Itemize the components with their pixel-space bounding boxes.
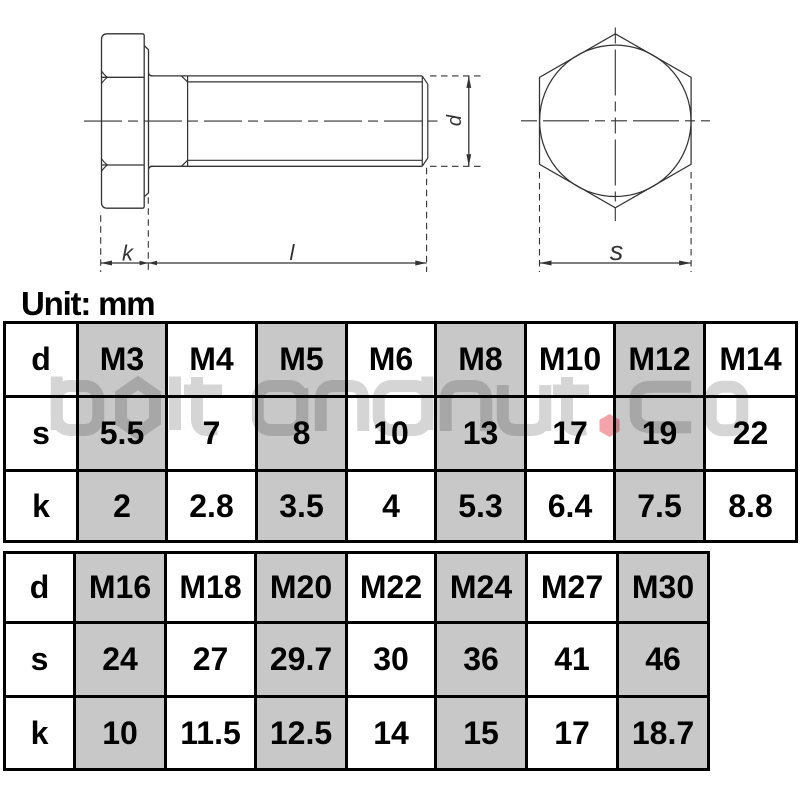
svg-text:d: d (444, 114, 466, 126)
svg-text:k: k (122, 241, 134, 266)
svg-text:l: l (290, 240, 296, 265)
svg-text:s: s (610, 236, 624, 266)
